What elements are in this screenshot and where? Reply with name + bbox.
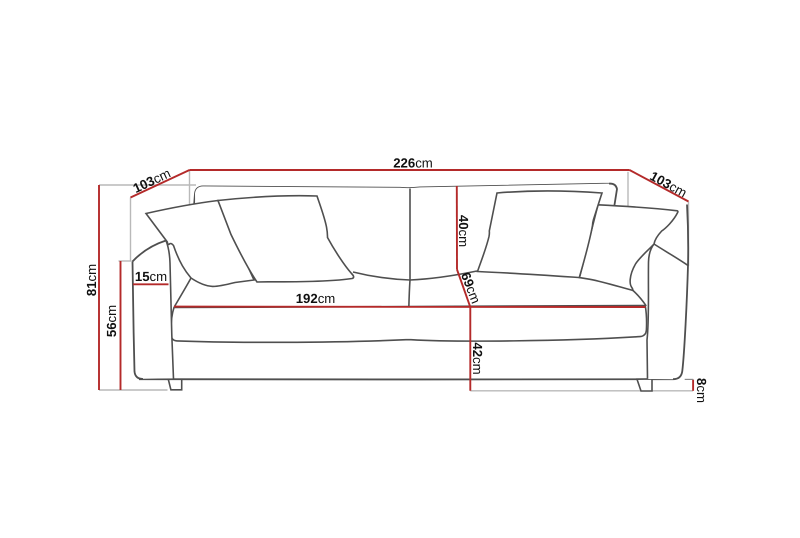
svg-text:8cm: 8cm — [694, 378, 709, 403]
svg-text:192cm: 192cm — [296, 291, 336, 306]
svg-text:81cm: 81cm — [84, 264, 99, 296]
svg-text:15cm: 15cm — [135, 269, 167, 284]
svg-text:56cm: 56cm — [104, 305, 119, 337]
svg-text:226cm: 226cm — [393, 155, 433, 170]
svg-text:42cm: 42cm — [470, 342, 485, 374]
svg-text:40cm: 40cm — [456, 215, 471, 247]
